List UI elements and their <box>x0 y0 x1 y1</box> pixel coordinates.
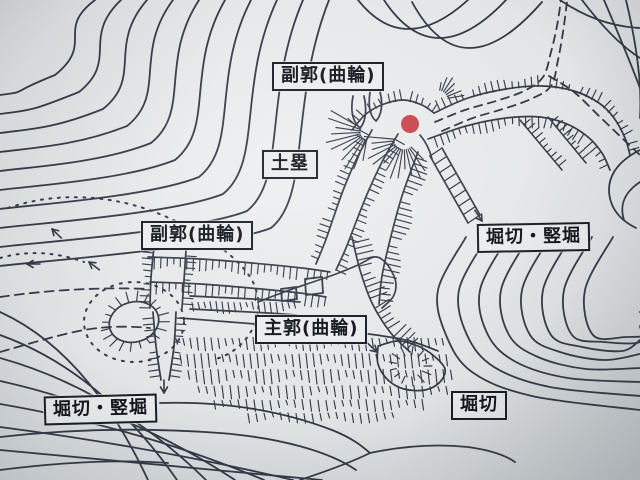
label-main-bailey: 主郭(曲輪) <box>255 315 367 344</box>
label-secondary-bailey-left: 副郭(曲輪) <box>141 221 253 250</box>
label-trench-right: 堀切・竪堀 <box>477 222 590 252</box>
label-earthwork-dorui: 土塁 <box>262 150 318 179</box>
label-secondary-bailey-top: 副郭(曲輪) <box>272 62 384 91</box>
red-location-dot <box>401 115 419 133</box>
castle-map-board: 副郭(曲輪) 土塁 副郭(曲輪) 堀切・竪堀 主郭(曲輪) 堀切・竪堀 堀切 <box>0 0 640 480</box>
marker-layer <box>401 115 419 133</box>
label-trench-bottom-left: 堀切・竪堀 <box>44 394 158 425</box>
label-horikiri-bottom-right: 堀切 <box>451 391 507 420</box>
